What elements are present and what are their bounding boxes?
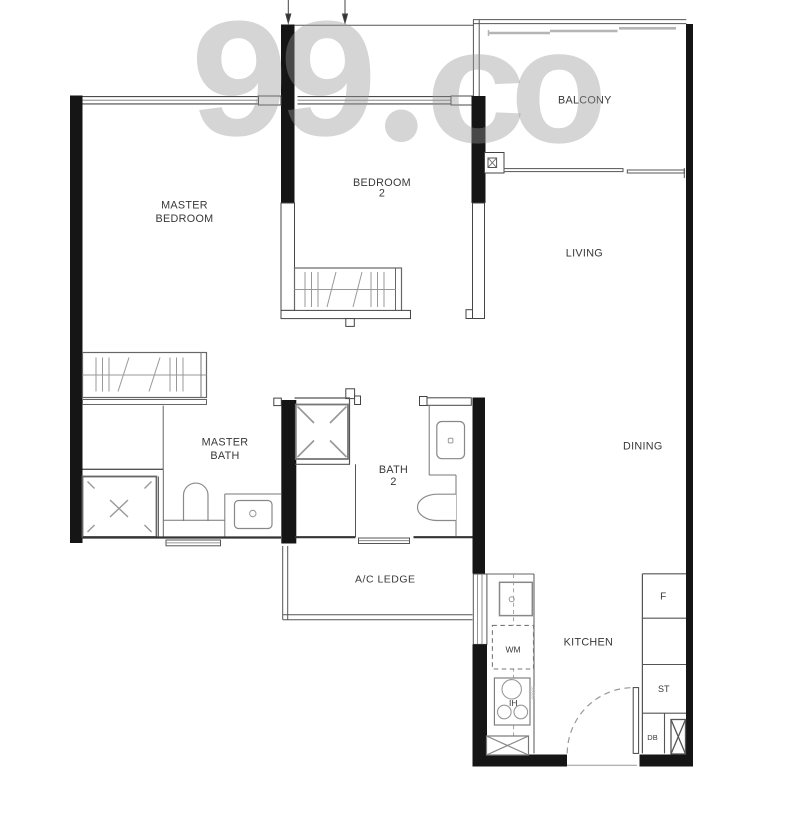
svg-text:ST: ST [658, 684, 670, 694]
svg-text:2: 2 [379, 188, 385, 200]
svg-text:S0005: S0005 [531, 686, 536, 700]
svg-text:2: 2 [390, 476, 396, 488]
svg-text:BATH: BATH [210, 450, 239, 462]
svg-text:WM: WM [505, 644, 520, 654]
svg-text:IH: IH [509, 698, 518, 708]
svg-text:9: 9 [191, 0, 288, 170]
svg-text:KITCHEN: KITCHEN [564, 637, 614, 649]
svg-text:BATH: BATH [379, 464, 408, 476]
svg-text:LIVING: LIVING [566, 248, 603, 260]
svg-text:A/C LEDGE: A/C LEDGE [355, 574, 416, 586]
svg-text:BEDROOM: BEDROOM [156, 213, 214, 225]
svg-text:o: o [511, 0, 608, 178]
svg-text:DINING: DINING [623, 440, 663, 452]
svg-text:9: 9 [280, 0, 377, 170]
svg-text:MASTER: MASTER [161, 200, 208, 212]
svg-text:DB: DB [647, 733, 657, 742]
svg-text:F: F [660, 592, 666, 603]
svg-text:MASTER: MASTER [202, 437, 249, 449]
